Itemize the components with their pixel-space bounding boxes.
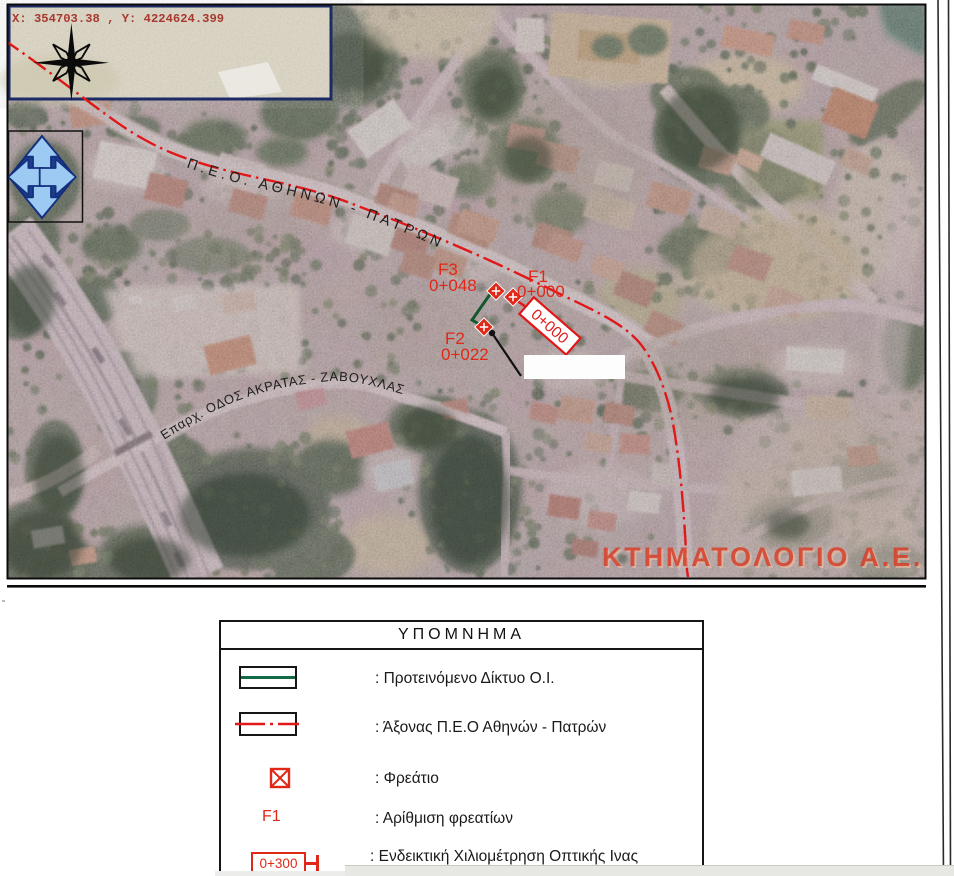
svg-text:ΚΤΗΜΑΤΟΛΟΓΙΟ Α.Ε.: ΚΤΗΜΑΤΟΛΟΓΙΟ Α.Ε.: [602, 542, 923, 572]
svg-text:0+022: 0+022: [441, 345, 489, 364]
svg-text:0+000: 0+000: [517, 282, 565, 301]
svg-text:0+048: 0+048: [429, 276, 477, 295]
svg-text:X: 354703.38 , Y: 4224624.399: X: 354703.38 , Y: 4224624.399: [12, 12, 224, 26]
